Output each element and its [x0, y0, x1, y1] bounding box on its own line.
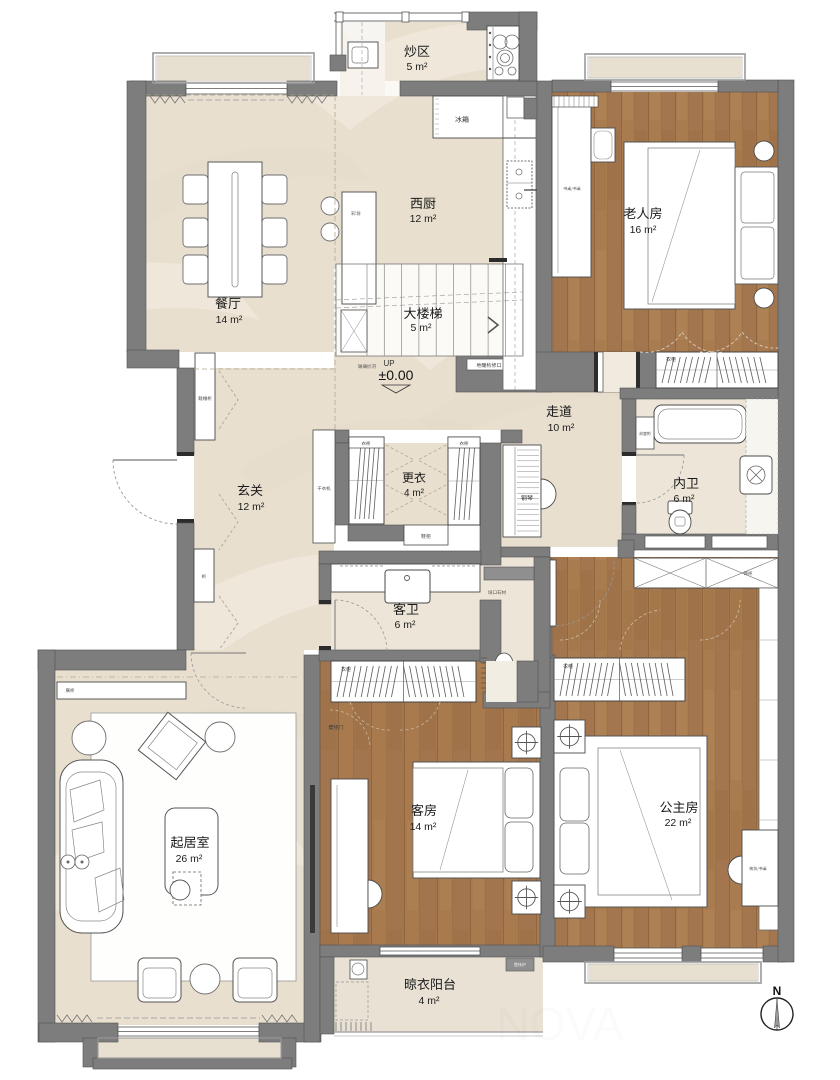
- svg-text:12 m²: 12 m²: [410, 213, 437, 225]
- svg-text:4 m²: 4 m²: [404, 488, 425, 499]
- svg-text:14 m²: 14 m²: [410, 821, 437, 833]
- svg-text:6 m²: 6 m²: [674, 493, 696, 505]
- svg-text:5 m²: 5 m²: [411, 322, 433, 334]
- svg-text:16 m²: 16 m²: [630, 224, 657, 236]
- svg-text:22 m²: 22 m²: [665, 817, 692, 829]
- svg-text:NOVA: NOVA: [497, 998, 624, 1050]
- svg-text:±0.00: ±0.00: [379, 367, 414, 383]
- svg-text:5 m²: 5 m²: [407, 61, 429, 73]
- svg-text:N: N: [773, 984, 782, 998]
- svg-text:14 m²: 14 m²: [216, 314, 243, 326]
- svg-text:6 m²: 6 m²: [395, 619, 417, 631]
- svg-text:10 m²: 10 m²: [548, 422, 575, 434]
- svg-text:26 m²: 26 m²: [176, 853, 203, 865]
- svg-text:12 m²: 12 m²: [238, 501, 265, 513]
- svg-text:4 m²: 4 m²: [419, 995, 441, 1007]
